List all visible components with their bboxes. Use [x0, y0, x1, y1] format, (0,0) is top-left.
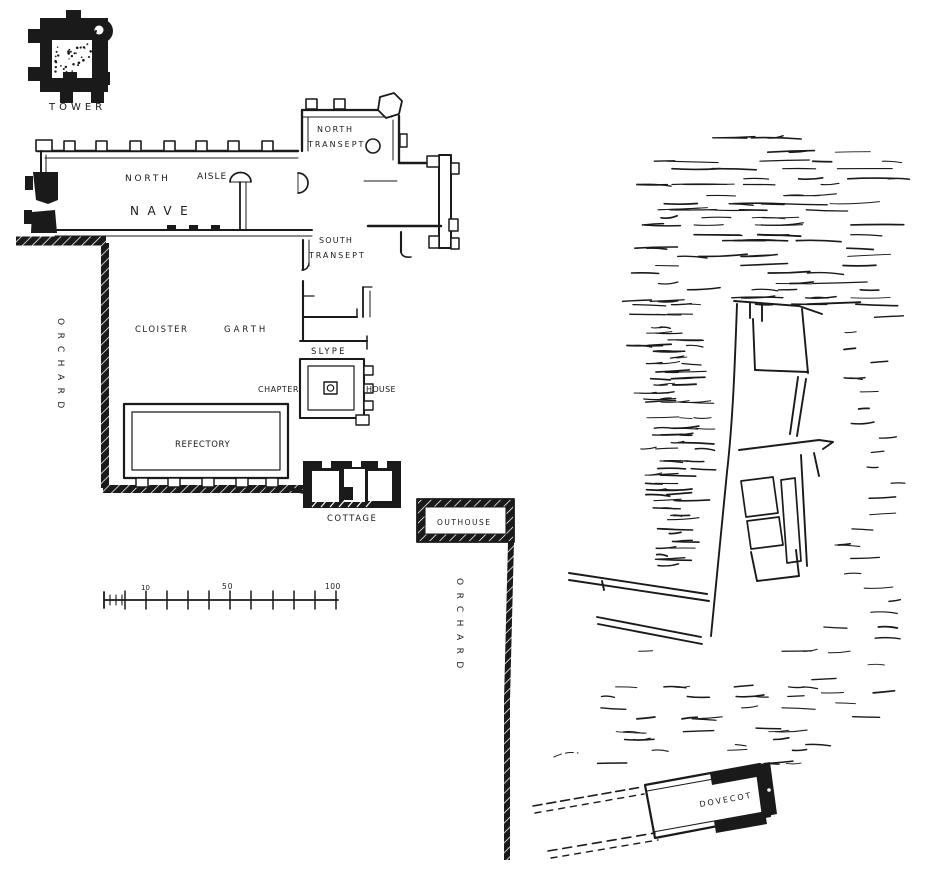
plan-labels: TOWERNORTHAISLENAVENORTHTRANSEPTSOUTHTRA… [48, 102, 753, 809]
orchard-long-wall-lower [597, 617, 702, 644]
plan-label-scale-10: 10 [141, 584, 150, 592]
monastery-site-plan: TOWERNORTHAISLENAVENORTHTRANSEPTSOUTHTRA… [0, 0, 928, 880]
transept-corner-turret [378, 93, 402, 118]
plan-label-scale-50: 50 [222, 582, 234, 591]
plan-label-north-transept-word1: NORTH [317, 125, 354, 134]
plan-label-nave: NAVE [130, 204, 196, 218]
aisle-east-door [298, 173, 308, 193]
plan-label-south-transept-word2: TRANSEPT [308, 251, 366, 260]
scale-bar [104, 591, 338, 609]
tower-plan [28, 10, 113, 103]
plan-label-scale-100: 100 [325, 582, 341, 591]
plan-label-garth: GARTH [224, 325, 268, 335]
earthwork-hachures [598, 136, 910, 765]
east-end-wall [439, 155, 451, 248]
plan-label-chapter: CHAPTER [258, 385, 299, 394]
orchard-long-wall-upper [569, 573, 709, 601]
dovecot-plan [533, 753, 777, 859]
west-end-pier [33, 172, 58, 204]
plan-label-orchard-east: ORCHARD [454, 578, 464, 676]
plan-label-outhouse: OUTHOUSE [437, 518, 492, 527]
cottage-plan [290, 459, 401, 508]
nave-screen-apse [230, 173, 251, 183]
chapter-house-pier [324, 382, 337, 394]
plan-label-north-transept-word2: TRANSEPT [307, 140, 365, 149]
earthwork-enclosures [569, 301, 833, 644]
plan-label-orchard-west: ORCHARD [55, 318, 65, 416]
plan-label-cottage: COTTAGE [327, 514, 377, 524]
plan-label-slype: SLYPE [311, 347, 347, 357]
plan-label-north-aisle-word1: NORTH [125, 174, 171, 184]
plan-drawing: TOWERNORTHAISLENAVENORTHTRANSEPTSOUTHTRA… [0, 0, 928, 880]
plan-label-tower: TOWER [48, 102, 106, 113]
plan-label-cloister: CLOISTER [135, 325, 188, 335]
plan-label-refectory: REFECTORY [175, 440, 231, 450]
plan-label-north-aisle-word2: AISLE [197, 172, 227, 182]
plan-label-south-transept-word1: SOUTH [319, 236, 353, 245]
orchard-boundary-wall [507, 542, 511, 860]
church-nave-plan [24, 140, 312, 236]
west-end-pier [31, 210, 57, 233]
transept-font-circle [366, 139, 380, 153]
plan-label-house: HOUSE [366, 385, 396, 394]
